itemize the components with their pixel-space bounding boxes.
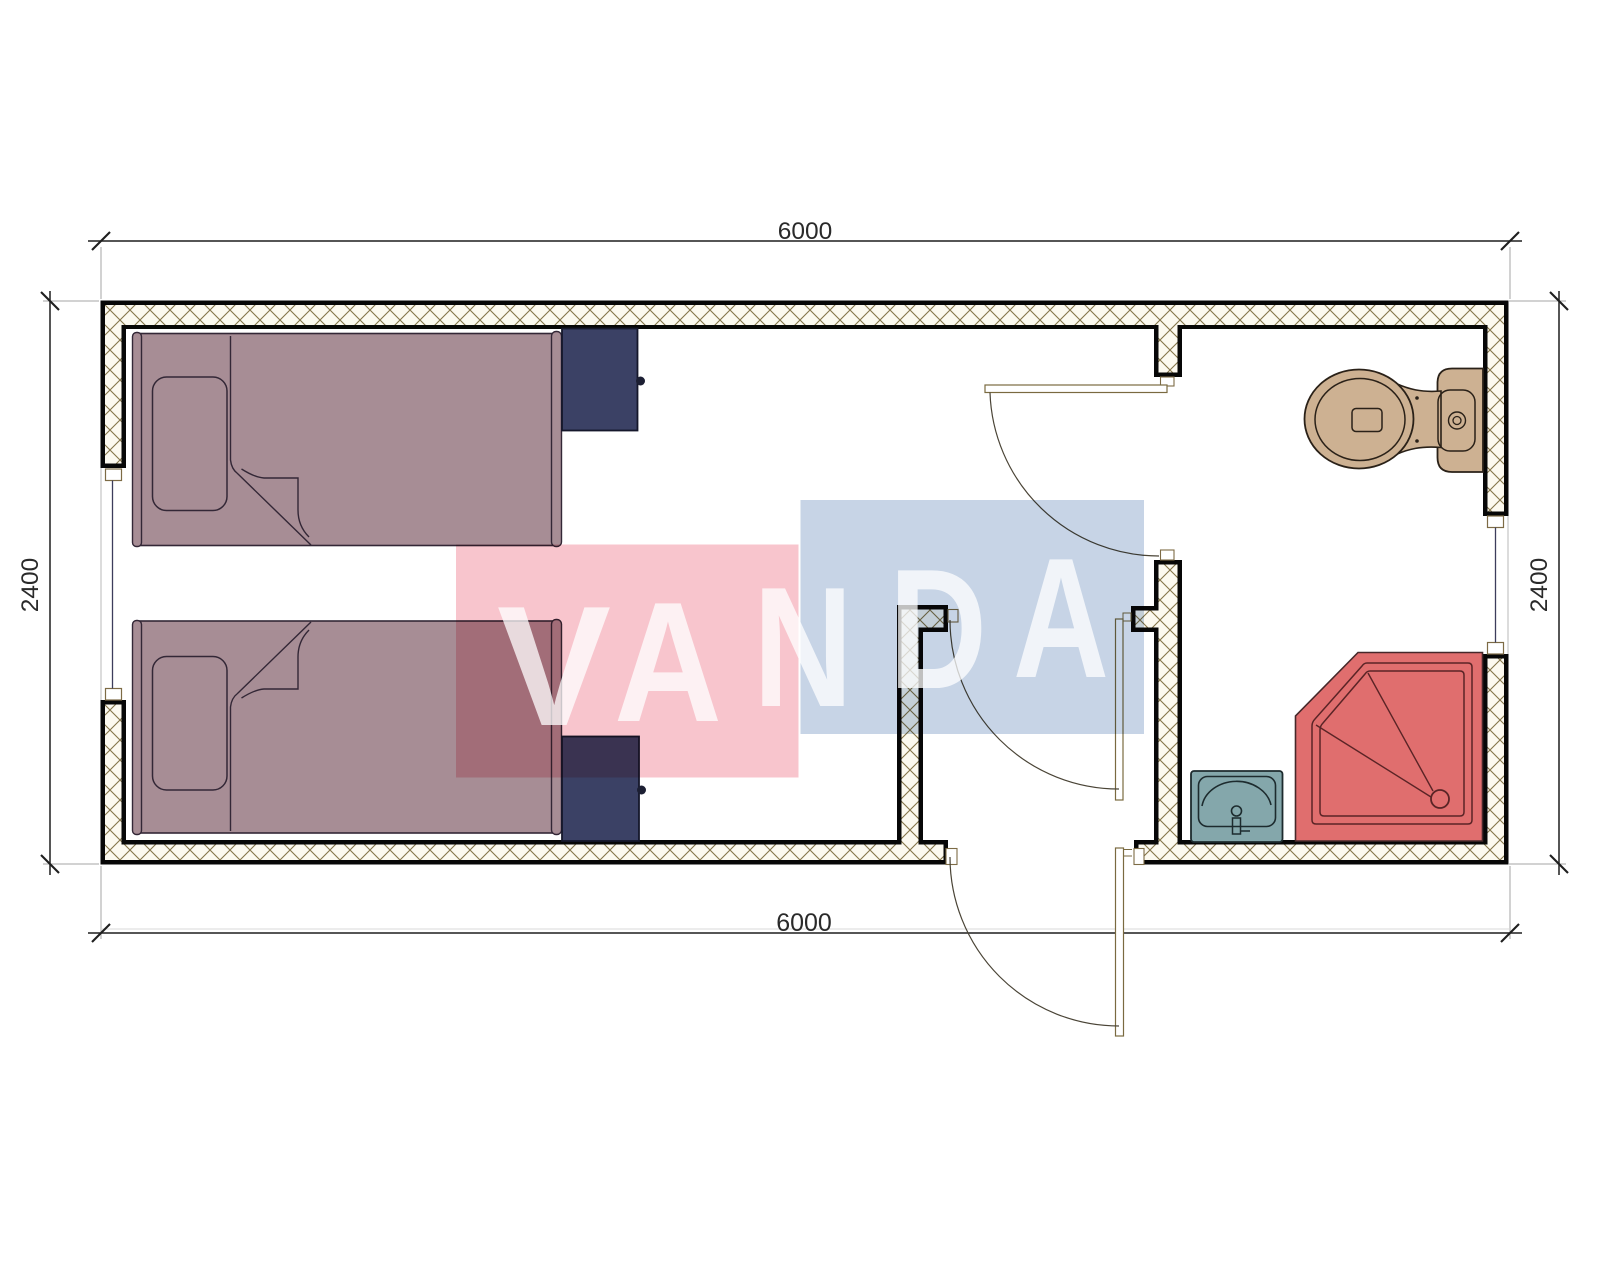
svg-text:6000: 6000 bbox=[778, 218, 833, 245]
svg-text:6000: 6000 bbox=[776, 909, 832, 937]
svg-text:2400: 2400 bbox=[1526, 558, 1553, 613]
svg-text:V: V bbox=[497, 571, 611, 762]
svg-text:N: N bbox=[753, 552, 853, 743]
svg-text:A: A bbox=[614, 567, 722, 758]
svg-text:D: D bbox=[889, 534, 987, 725]
svg-text:2400: 2400 bbox=[17, 558, 44, 613]
svg-text:A: A bbox=[1013, 523, 1109, 714]
